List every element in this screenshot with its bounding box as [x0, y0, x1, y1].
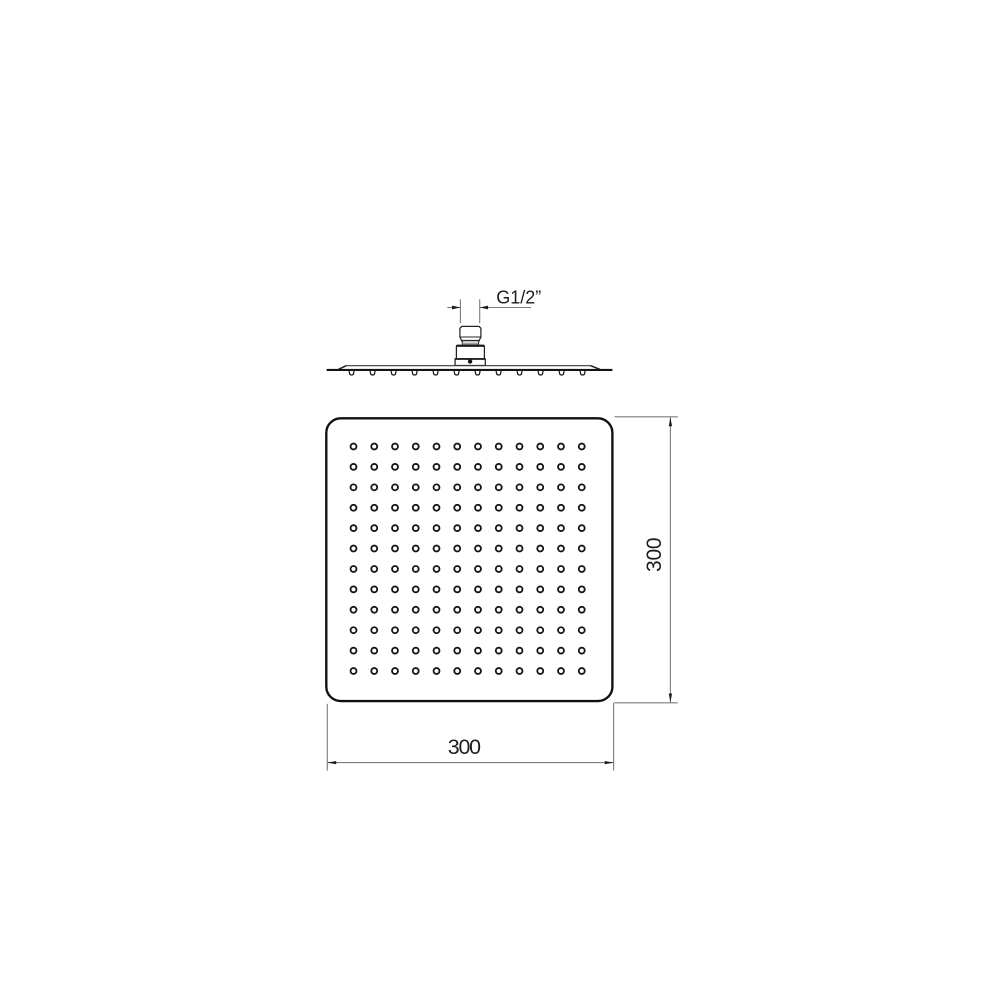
- svg-text:G1/2”: G1/2”: [496, 288, 541, 308]
- svg-text:300: 300: [643, 538, 666, 572]
- svg-text:300: 300: [448, 735, 481, 759]
